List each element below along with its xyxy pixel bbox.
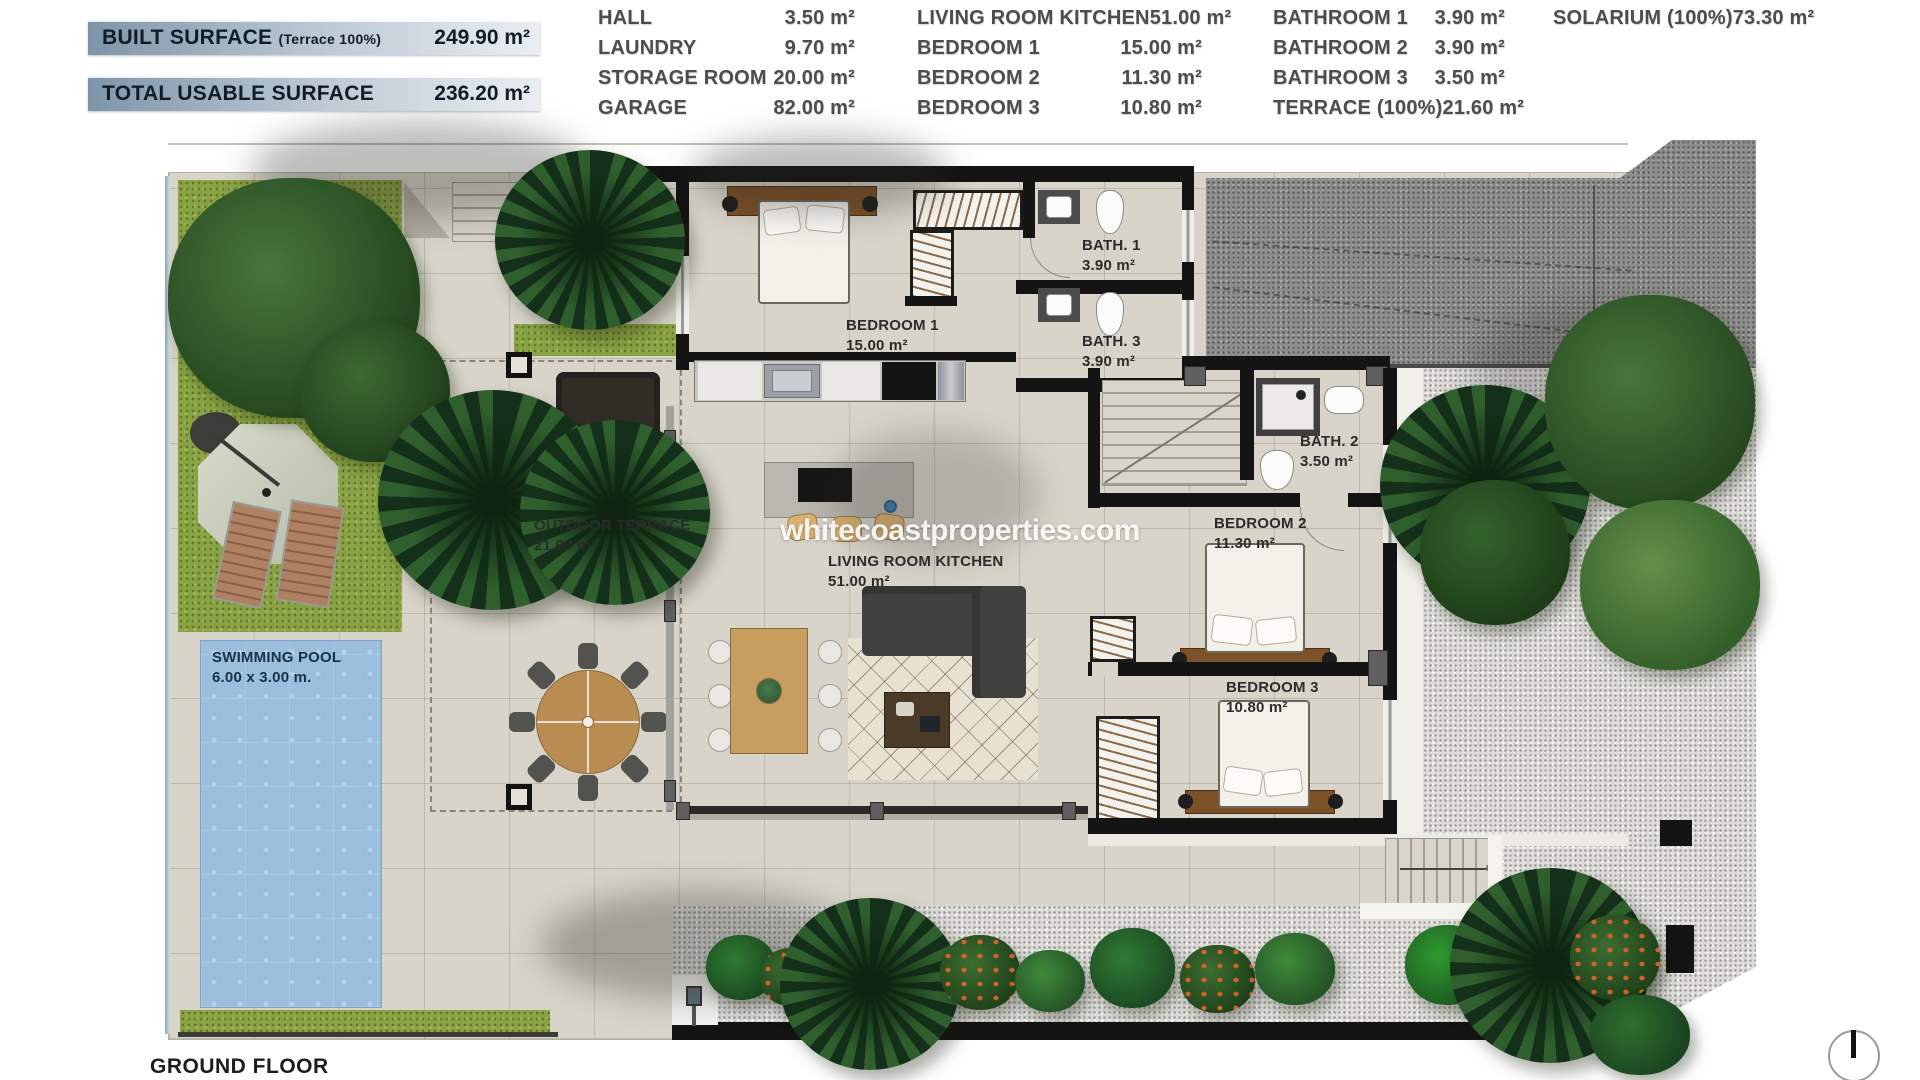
room-area: 3.90 m² [1082, 256, 1141, 276]
glazing-post [664, 600, 676, 622]
room-name: BEDROOM 1 [846, 316, 939, 336]
south-palm [780, 898, 960, 1070]
surface-value: 3.50 m² [1435, 68, 1505, 88]
bath1-sink [1046, 196, 1072, 218]
glazing-post [1062, 802, 1076, 820]
surface-row: GARAGE 82.00 m² [598, 98, 855, 118]
bottom-left-wall-line [178, 1032, 558, 1037]
south-bush-flowers [1180, 945, 1255, 1013]
kitchen-sink-basin [772, 370, 812, 392]
bedroom3-window [1383, 700, 1397, 800]
room-area: 51.00 m² [828, 572, 1003, 592]
patio-chair [578, 643, 598, 669]
room-label-bath2: BATH. 2 3.50 m² [1300, 432, 1359, 471]
bedroom3-nightstand [1328, 794, 1343, 809]
surface-value: 11.30 m² [1121, 68, 1202, 88]
room-name: OUTDOOR TERRACE [534, 516, 690, 536]
bedroom2-pillow [1210, 614, 1253, 647]
surface-value: 3.90 m² [1435, 8, 1505, 28]
sofa-chaise [972, 586, 1026, 698]
surface-value: 51.00 m² [1150, 8, 1232, 28]
bush-right-light [1580, 500, 1760, 670]
bush-right [1420, 480, 1570, 625]
usable-surface-banner: TOTAL USABLE SURFACE 236.20 m² [88, 77, 540, 111]
glazing-post [870, 802, 884, 820]
room-name: BEDROOM 2 [1214, 514, 1307, 534]
wall-stairs-bath2-divider [1240, 368, 1254, 480]
north-indicator-needle [1851, 1030, 1856, 1058]
bath1-window [1182, 210, 1194, 262]
surface-value: 73.30 m² [1733, 8, 1815, 28]
surface-row: LIVING ROOM KITCHEN 51.00 m² [917, 8, 1202, 28]
bedroom3-pillow [1263, 768, 1304, 797]
boundary-wall-mark [1660, 820, 1692, 846]
bush-bottom-right-flowers [1570, 915, 1660, 1000]
surface-name: LAUNDRY [598, 38, 696, 58]
kitchen-cabinet [698, 362, 762, 400]
surface-value: 82.00 m² [773, 98, 855, 118]
glazing-post [664, 780, 676, 802]
surface-row: TERRACE (100%) 21.60 m² [1273, 98, 1505, 118]
kitchen-cabinet-2 [822, 362, 880, 400]
room-area: 15.00 m² [846, 336, 939, 356]
exterior-stairs [1385, 838, 1493, 904]
umbrella-hub [262, 488, 271, 497]
surface-row: SOLARIUM (100%) 73.30 m² [1553, 8, 1798, 28]
room-name: SWIMMING POOL [212, 648, 341, 668]
bath3-window [1182, 300, 1194, 356]
terrace-pillar-top [506, 352, 532, 378]
room-area: 10.80 m² [1226, 698, 1319, 718]
built-surface-sublabel: (Terrace 100%) [278, 31, 381, 47]
dining-stool [818, 684, 842, 708]
bush-corner [1590, 995, 1690, 1075]
surface-row: HALL 3.50 m² [598, 8, 855, 28]
utility-post-stem [692, 1006, 696, 1026]
wall-bath1-left [1023, 182, 1035, 238]
pillar-bath2 [1184, 366, 1206, 386]
bedroom2-door-gap [1300, 493, 1348, 507]
wall-house-bottom [1088, 818, 1394, 834]
room-name: BATH. 2 [1300, 432, 1359, 452]
room-label-bedroom3: BEDROOM 3 10.80 m² [1226, 678, 1319, 717]
bedroom2-wardrobe [1090, 616, 1136, 662]
south-walkway [1088, 834, 1628, 846]
south-bush-flowers [940, 935, 1020, 1010]
surface-value: 9.70 m² [785, 38, 855, 58]
room-area: 3.50 m² [1300, 452, 1359, 472]
patio-chair [641, 712, 667, 732]
tree-right-large [1545, 295, 1755, 510]
surface-row: BEDROOM 1 15.00 m² [917, 38, 1202, 58]
room-area: 21.60 m² [534, 536, 690, 556]
coffee-table [884, 692, 950, 748]
surface-name: GARAGE [598, 98, 687, 118]
hall-closet-vertical [910, 230, 954, 300]
dining-stool [818, 640, 842, 664]
surface-value: 15.00 m² [1120, 38, 1202, 58]
surface-value: 3.90 m² [1435, 38, 1505, 58]
room-area: 11.30 m² [1214, 534, 1307, 554]
south-bush [1090, 928, 1175, 1008]
tree-shadow [690, 135, 950, 215]
room-name: BATH. 3 [1082, 332, 1141, 352]
bath2-shower-head [1296, 390, 1306, 400]
coffee-table-book [920, 716, 940, 732]
bedroom2-pillow [1255, 616, 1297, 646]
dining-stool [818, 728, 842, 752]
kitchen-cooktop [882, 362, 936, 400]
bath2-sink [1324, 386, 1364, 414]
dining-stool [708, 640, 732, 664]
room-area: 3.90 m² [1082, 352, 1141, 372]
built-surface-label: BUILT SURFACE (Terrace 100%) [102, 26, 381, 50]
surface-value: 21.60 m² [1443, 98, 1525, 118]
bottom-left-grass-strip [180, 1010, 550, 1034]
boundary-wall-mark [1666, 925, 1694, 973]
patio-chair [578, 775, 598, 801]
bath3-sink [1046, 294, 1072, 316]
surface-row: BATHROOM 3 3.50 m² [1273, 68, 1505, 88]
room-area: 6.00 x 3.00 m. [212, 668, 341, 688]
room-label-bath3: BATH. 3 3.90 m² [1082, 332, 1141, 371]
south-bush [1015, 950, 1085, 1012]
wall-right-wing-top [1194, 356, 1390, 370]
surface-row: BATHROOM 2 3.90 m² [1273, 38, 1505, 58]
usable-surface-value: 236.20 m² [434, 82, 530, 106]
surface-row: STORAGE ROOM 20.00 m² [598, 68, 855, 88]
wall-bedroom2-bedroom3 [1088, 662, 1390, 676]
built-surface-value: 249.90 m² [434, 26, 530, 50]
dining-centerpiece [756, 678, 782, 704]
wall-stairs-left [1088, 368, 1100, 508]
surface-name: BATHROOM 3 [1273, 68, 1408, 88]
surface-name: SOLARIUM (100%) [1553, 8, 1733, 28]
pillar-bedroom3-right [1368, 650, 1388, 686]
room-label-outdoor-terrace: OUTDOOR TERRACE 21.60 m² [534, 516, 690, 555]
surface-row: BATHROOM 1 3.90 m² [1273, 8, 1505, 28]
surface-row: LAUNDRY 9.70 m² [598, 38, 855, 58]
room-name: BEDROOM 3 [1226, 678, 1319, 698]
terrace-pillar-bottom [506, 784, 532, 810]
kitchen-oven [938, 362, 964, 400]
surface-name: TERRACE (100%) [1273, 98, 1443, 118]
floorplan-page: BEDROOM 1 15.00 m² BATH. 1 3.90 m² BATH.… [0, 0, 1920, 1080]
built-surface-banner: BUILT SURFACE (Terrace 100%) 249.90 m² [88, 21, 540, 55]
bedroom3-nightstand [1178, 794, 1193, 809]
surface-value: 10.80 m² [1120, 98, 1202, 118]
exterior-stairs-rail [1400, 868, 1488, 870]
room-label-living: LIVING ROOM KITCHEN 51.00 m² [828, 552, 1003, 591]
bedroom3-pillow [1222, 765, 1263, 796]
floor-title: GROUND FLOOR [150, 1056, 329, 1077]
surface-value: 3.50 m² [785, 8, 855, 28]
surface-row: BEDROOM 2 11.30 m² [917, 68, 1202, 88]
surface-name: BATHROOM 1 [1273, 8, 1408, 28]
surface-name: STORAGE ROOM [598, 68, 767, 88]
room-label-bath1: BATH. 1 3.90 m² [1082, 236, 1141, 275]
surface-row: BEDROOM 3 10.80 m² [917, 98, 1202, 118]
palm-left-2 [520, 420, 710, 605]
bedroom3-door-gap [1092, 662, 1118, 676]
dining-stool [708, 684, 732, 708]
usable-surface-label: TOTAL USABLE SURFACE [102, 82, 374, 106]
surface-name: LIVING ROOM KITCHEN [917, 8, 1150, 28]
glazing-post [676, 802, 690, 820]
coffee-table-decor [896, 702, 914, 716]
room-label-bedroom1: BEDROOM 1 15.00 m² [846, 316, 939, 355]
patio-table-center [582, 716, 594, 728]
room-label-bedroom2: BEDROOM 2 11.30 m² [1214, 514, 1307, 553]
watermark: whitecoastproperties.com [780, 516, 1140, 546]
surface-name: BEDROOM 3 [917, 98, 1040, 118]
room-name: BATH. 1 [1082, 236, 1141, 256]
room-label-swimming-pool: SWIMMING POOL 6.00 x 3.00 m. [212, 648, 341, 687]
south-bush [1255, 933, 1335, 1005]
swimming-pool [200, 640, 382, 1008]
palm-top-left [495, 150, 685, 330]
surface-name: BATHROOM 2 [1273, 38, 1408, 58]
room-name: LIVING ROOM KITCHEN [828, 552, 1003, 572]
surface-name: BEDROOM 2 [917, 68, 1040, 88]
surface-name: BEDROOM 1 [917, 38, 1040, 58]
patio-chair [509, 712, 535, 732]
closet-end-wall [905, 296, 957, 306]
bath2-shower-tray [1262, 384, 1314, 430]
surface-value: 20.00 m² [773, 68, 855, 88]
surface-name: HALL [598, 8, 652, 28]
dining-stool [708, 728, 732, 752]
